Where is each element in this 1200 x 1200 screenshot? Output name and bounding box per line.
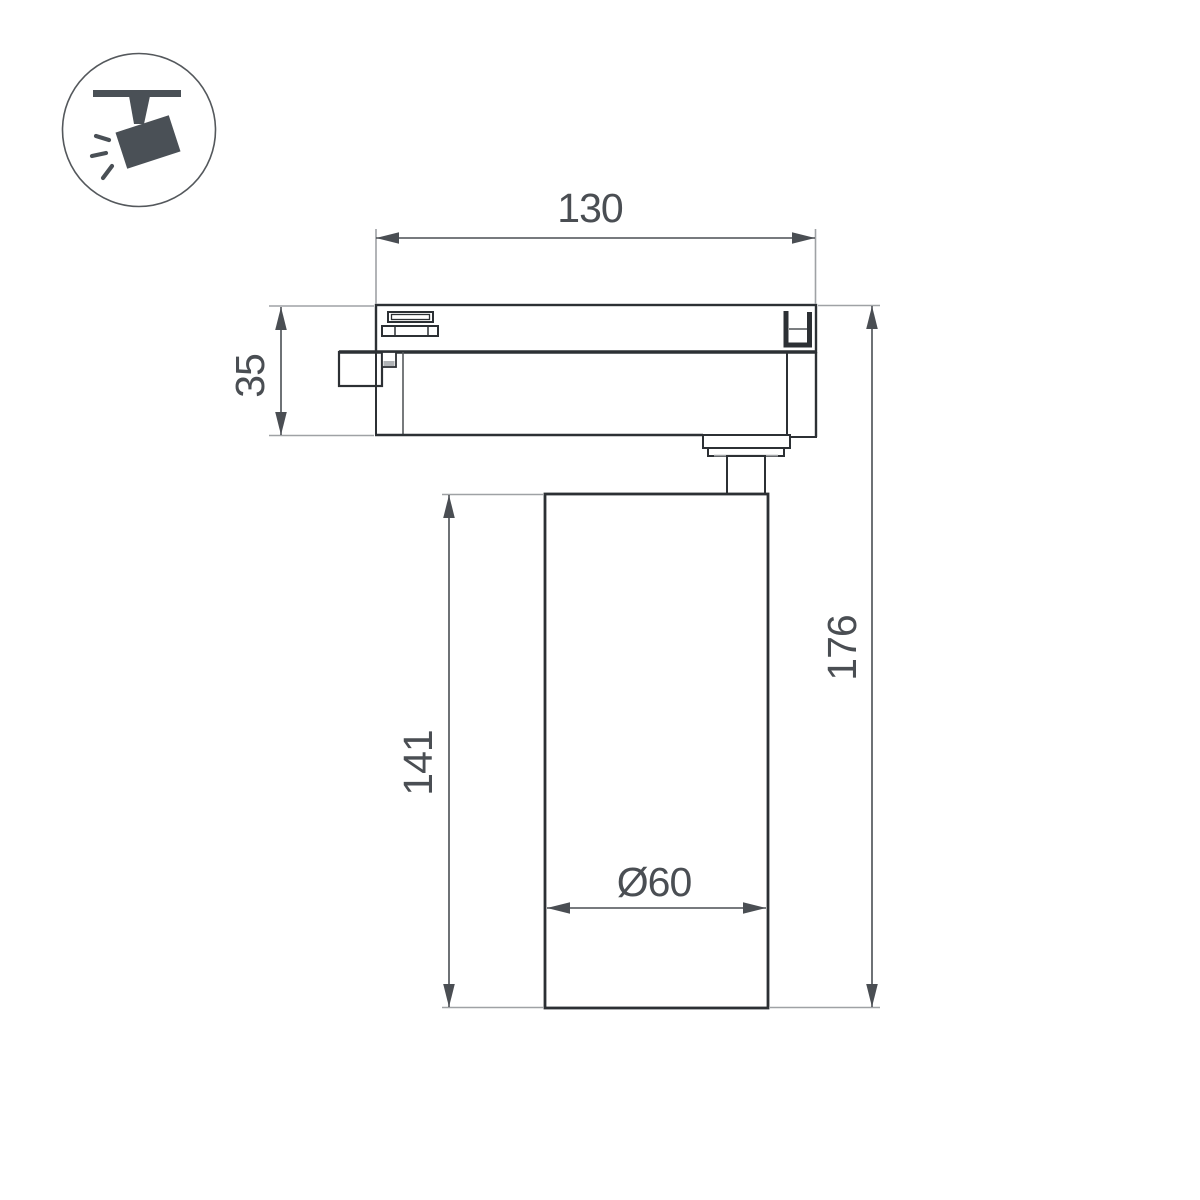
dim-width: 130 [376, 185, 816, 304]
spotlight-icon [63, 54, 216, 207]
adapter-contact-lower [382, 326, 438, 336]
adapter-contact-upper [388, 312, 433, 322]
drawing-canvas: 130 35 141 176 Ø60 [0, 0, 1200, 1200]
lamp-body [545, 435, 790, 1008]
dim-body-height: 141 [395, 495, 544, 1008]
arrowhead [866, 984, 878, 1007]
swivel-stem [727, 456, 765, 494]
adapter-notch-fill [384, 361, 395, 366]
cylinder-body [545, 494, 768, 1008]
dimension-drawing: 130 35 141 176 Ø60 [0, 0, 1200, 1200]
arrowhead [443, 984, 455, 1007]
arrowhead [792, 232, 815, 244]
mount-flange-upper [703, 435, 790, 448]
arrowhead [866, 306, 878, 329]
icon-light-ray [92, 153, 106, 156]
arrowhead [275, 412, 287, 435]
arrowhead [376, 232, 399, 244]
arrowhead [275, 307, 287, 330]
track-adapter [339, 305, 817, 437]
dim-total-height-value: 176 [819, 615, 865, 680]
dim-width-value: 130 [557, 185, 623, 231]
icon-ceiling-bar [93, 90, 181, 97]
dim-diameter-value: Ø60 [617, 859, 692, 905]
adapter-top-housing [376, 305, 816, 352]
dim-adapter-height-value: 35 [227, 354, 273, 398]
dim-body-height-value: 141 [395, 730, 441, 795]
arrowhead [443, 495, 455, 518]
